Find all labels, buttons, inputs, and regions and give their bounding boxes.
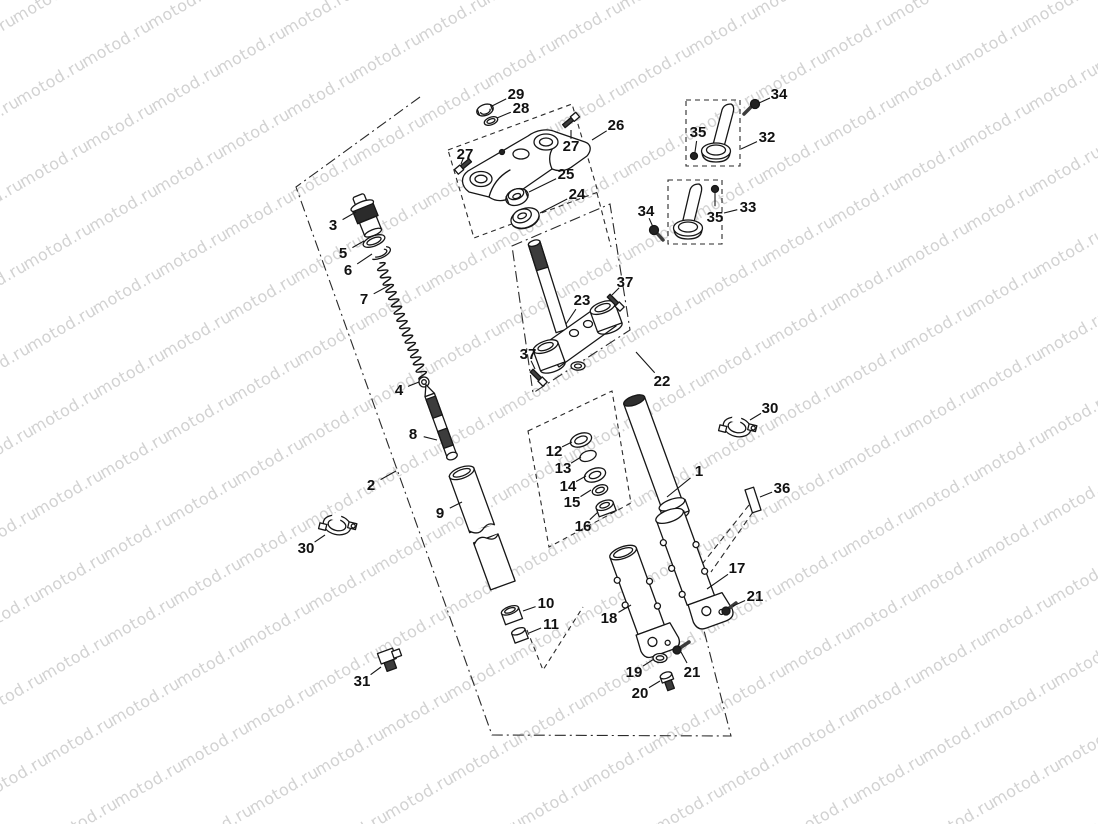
callout-label-3: 3 [329,217,337,234]
part-30-clamp-right [718,412,758,441]
callout-leader-15 [581,490,592,497]
part-30-clamp-left [318,510,358,539]
callout-label-30: 30 [762,400,779,417]
callout-leader-2 [381,471,396,480]
callout-label-24: 24 [569,186,586,203]
callout-label-19: 19 [626,664,643,681]
callout-leader-21 [681,652,687,663]
callout-leader-30 [315,535,325,542]
callout-label-27: 27 [563,138,580,155]
callout-label-8: 8 [409,426,417,443]
part-20-drain-bolt [659,670,676,691]
callout-leader-23 [566,309,576,324]
callout-label-4: 4 [395,382,404,399]
callout-leader-36 [760,492,772,497]
callout-label-12: 12 [546,443,563,460]
callout-leader-34 [759,98,770,103]
part-11-bushing [511,626,529,643]
callout-label-37: 37 [617,274,634,291]
callout-leader-26 [592,131,607,140]
callout-label-5: 5 [339,245,347,262]
part-15-washer [591,483,609,497]
callout-label-14: 14 [560,478,577,495]
part-35-damper-upper [691,153,698,160]
callout-leader-30 [750,413,761,420]
callout-leader-22 [636,352,655,373]
callout-label-1: 1 [695,463,703,480]
part-14-oil-seal [582,465,607,485]
callout-leader-24 [540,199,567,213]
callout-leader-31 [371,667,381,675]
part-16-retainer [595,498,617,517]
part-13-seal-spacer [578,448,597,463]
part-7-fork-spring [378,263,427,380]
callout-label-11: 11 [543,616,559,633]
part-29-stem-nut [475,102,495,118]
callout-label-35: 35 [690,124,707,141]
callout-label-2: 2 [367,477,375,494]
reflector-locator-line-1 [703,505,749,563]
part-28-washer [483,115,499,127]
exploded-view-diagram: 1234567891011121314151617181920212122232… [0,0,1098,824]
part-9-inner-tube-lower [473,532,515,590]
callout-label-13: 13 [555,460,572,477]
part-24-bearing-cover [508,204,542,232]
parts-diagram-canvas: motod.rumotod.rumotod.rumotod.rumotod.ru… [0,0,1098,824]
part-35-damper-lower [712,186,719,193]
part-31-stopper-bracket [377,646,405,672]
callout-label-17: 17 [729,560,746,577]
callout-label-20: 20 [632,685,649,702]
callout-leader-32 [741,142,757,149]
callout-label-23: 23 [574,292,591,309]
callout-label-33: 33 [740,199,757,216]
part-23-steering-stem [528,239,568,333]
callout-leader-5 [352,241,364,248]
callout-label-35: 35 [707,209,724,226]
part-1-fork-tube [622,393,684,514]
callout-leader-19 [643,659,654,666]
part-27-crown-bolt-right [562,112,580,128]
part-8-damper-rod [421,383,459,461]
callout-leader-33 [724,210,737,213]
callout-label-21: 21 [747,588,764,605]
part-9-inner-tube-upper [448,463,495,535]
part-36-reflector [745,487,761,513]
callout-leader-11 [529,628,541,633]
callout-label-7: 7 [360,291,368,308]
callout-label-10: 10 [538,595,555,612]
callout-leader-8 [424,437,437,440]
part-19-gasket [653,654,667,663]
callout-label-15: 15 [564,494,581,511]
callout-leader-20 [649,681,660,688]
callout-label-36: 36 [774,480,791,497]
callout-label-31: 31 [354,673,371,690]
callout-label-9: 9 [436,505,444,522]
callout-leader-35 [695,141,697,152]
callout-label-25: 25 [558,166,575,183]
callout-leader-29 [492,99,506,106]
callout-leader-6 [357,254,372,264]
callout-label-34: 34 [638,203,655,220]
part-10-bushing [500,604,522,625]
part-34-bracket-bolt-upper [744,100,760,115]
callout-label-29: 29 [508,86,525,103]
part-3-fork-cap-bolt [347,191,385,240]
callout-label-18: 18 [601,610,618,627]
part-33-cable-bracket-lower [674,184,703,239]
part-34-bracket-bolt-lower [650,226,664,241]
part-22-lower-triple-clamp [531,298,623,376]
part-12-oil-seal [568,430,593,450]
callout-leader-10 [523,607,536,611]
callout-label-21: 21 [684,664,701,681]
clamp-box-connector [597,193,611,247]
callout-label-37: 37 [520,346,537,363]
callout-label-22: 22 [654,373,671,390]
callout-leader-13 [571,457,581,463]
callout-label-16: 16 [575,518,592,535]
part-6-spring-seat [370,246,392,261]
callout-label-32: 32 [759,129,776,146]
callout-leader-4 [408,382,419,386]
callout-label-27: 27 [457,146,474,163]
callout-label-34: 34 [771,86,788,103]
callout-label-6: 6 [344,262,352,279]
callout-leader-28 [497,112,511,118]
callout-label-30: 30 [298,540,315,557]
callout-label-26: 26 [608,117,625,134]
